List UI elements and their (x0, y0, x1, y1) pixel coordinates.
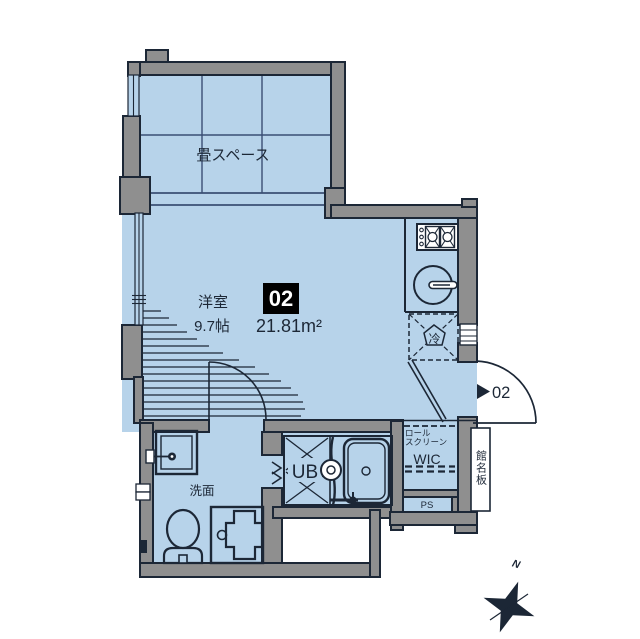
washroom-wall-vent (136, 484, 150, 492)
tatami-label: 畳スペース (196, 147, 269, 164)
entrance-arrow-icon (477, 384, 490, 399)
main-room-label: 洋室 (198, 294, 228, 311)
tatami-left-window (128, 75, 139, 116)
floor-plan-drawing: 冷 02 ロール スクリーン WIC PS 館名板 (0, 0, 640, 639)
bath-faucet-dial (321, 460, 341, 480)
wic-label: WIC (413, 451, 440, 467)
main-room-floor-left (122, 193, 345, 432)
toilet (164, 510, 202, 563)
main-room-size: 9.7帖 (194, 318, 230, 335)
roll-screen-label-2: スクリーン (405, 437, 447, 447)
nameplate: 館名板 (471, 428, 490, 511)
fridge-label: 冷 (428, 332, 440, 346)
compass: N (484, 558, 535, 633)
bath-label: UB (292, 462, 318, 483)
unit-number: 02 (269, 286, 293, 311)
entrance-unit-label: 02 (492, 384, 510, 402)
unit-area: 21.81m² (256, 316, 322, 336)
wall-fitting (140, 540, 147, 553)
entrance: 02 (473, 361, 536, 423)
ps-label: PS (421, 500, 434, 511)
nameplate-label: 館名板 (475, 449, 488, 486)
washroom-label: 洗面 (189, 484, 214, 498)
stove (417, 224, 458, 250)
kitchen-right-window (460, 324, 477, 345)
washroom-wall-vent-2 (136, 492, 150, 500)
floor-plan-canvas: 冷 02 ロール スクリーン WIC PS 館名板 (0, 0, 640, 639)
compass-north-label: N (511, 558, 522, 572)
